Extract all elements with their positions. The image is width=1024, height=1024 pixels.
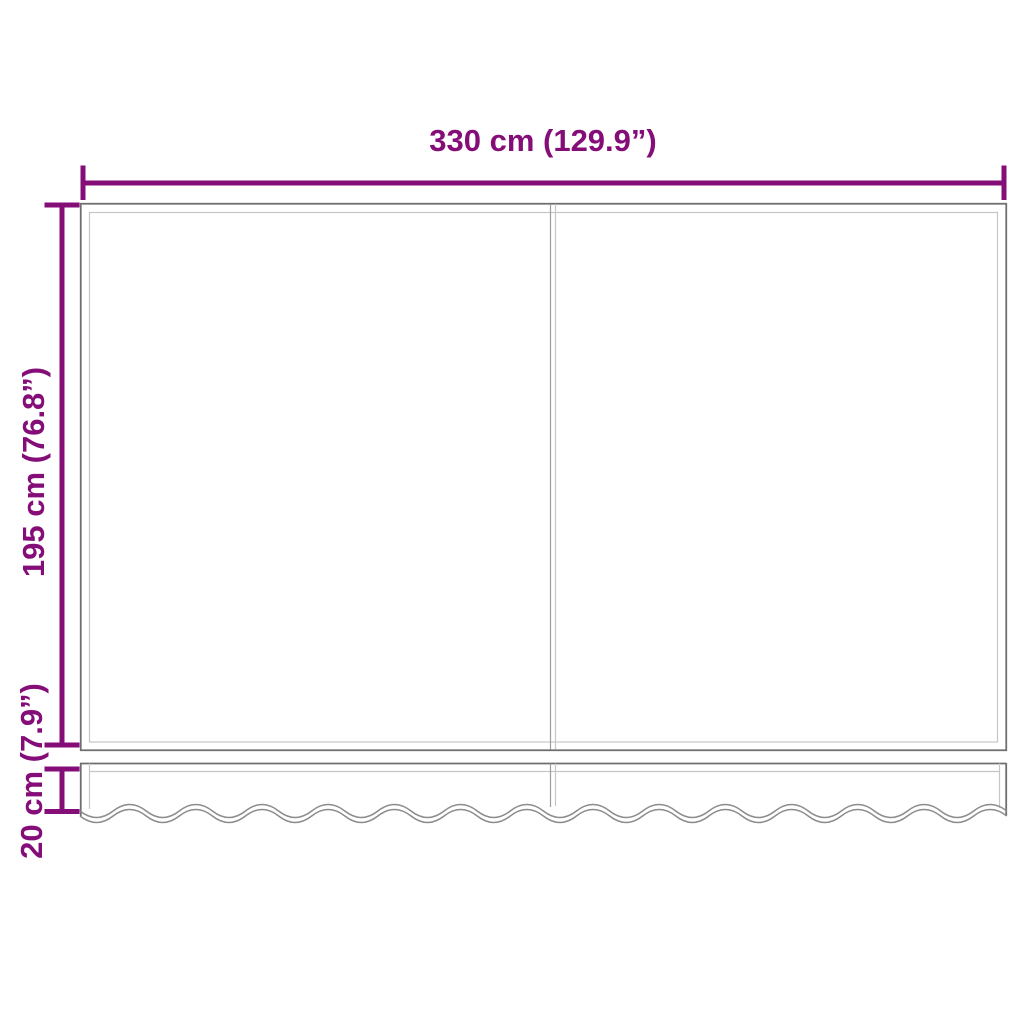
- height-dimension-label: 195 cm (76.8”): [16, 367, 51, 577]
- product-dimension-diagram: 330 cm (129.9”) 195 cm (76.8”) 20 cm (7.…: [0, 0, 1024, 1024]
- fabric-panel-outline: [81, 204, 1007, 751]
- awning-fabric-diagram: 330 cm (129.9”) 195 cm (76.8”) 20 cm (7.…: [0, 0, 1024, 1024]
- valance-strip: [80, 763, 1007, 823]
- height-dimension: 195 cm (76.8”): [16, 205, 80, 745]
- fabric-panel: [81, 204, 1007, 751]
- width-dimension: 330 cm (129.9”): [83, 123, 1004, 200]
- valance-dimension: 20 cm (7.9”): [14, 683, 80, 859]
- width-dimension-label: 330 cm (129.9”): [429, 123, 656, 158]
- valance-dimension-label: 20 cm (7.9”): [14, 683, 49, 859]
